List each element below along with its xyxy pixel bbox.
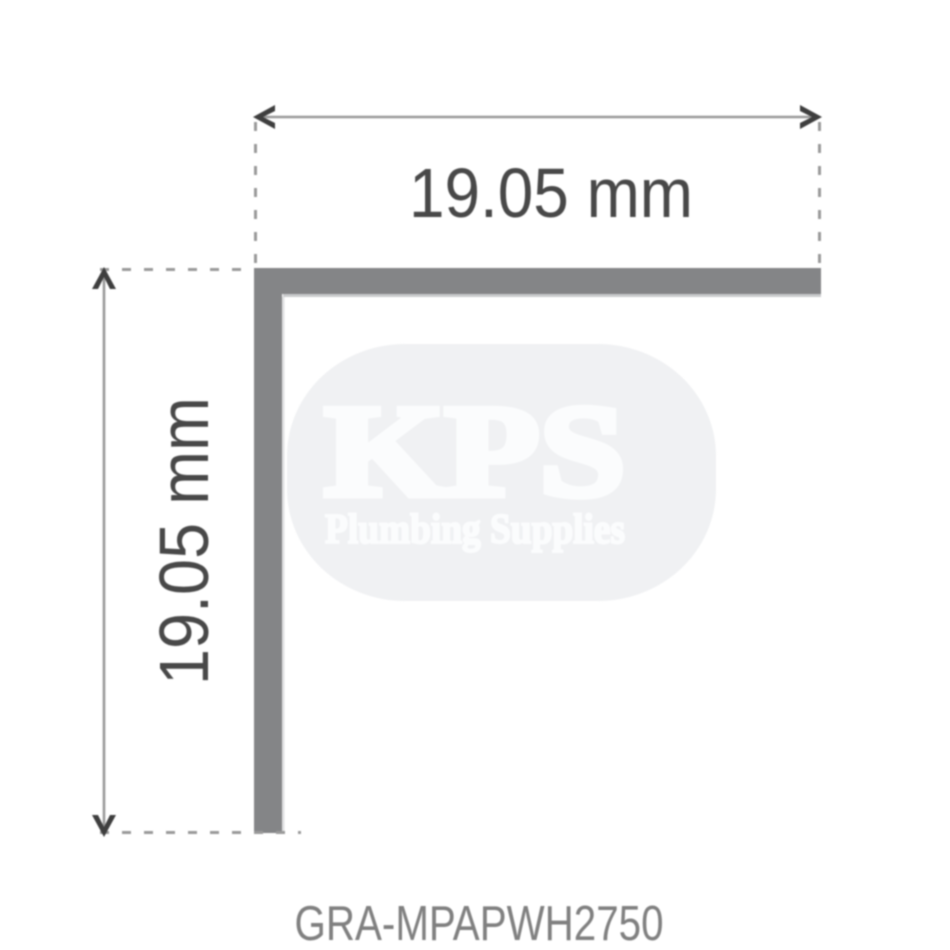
svg-text:KPS: KPS [325, 379, 626, 524]
svg-text:GRA-MPAPWH2750: GRA-MPAPWH2750 [295, 897, 664, 950]
svg-text:19.05 mm: 19.05 mm [409, 154, 693, 232]
svg-text:19.05 mm: 19.05 mm [145, 397, 223, 685]
svg-text:Plumbing Supplies: Plumbing Supplies [325, 507, 625, 553]
